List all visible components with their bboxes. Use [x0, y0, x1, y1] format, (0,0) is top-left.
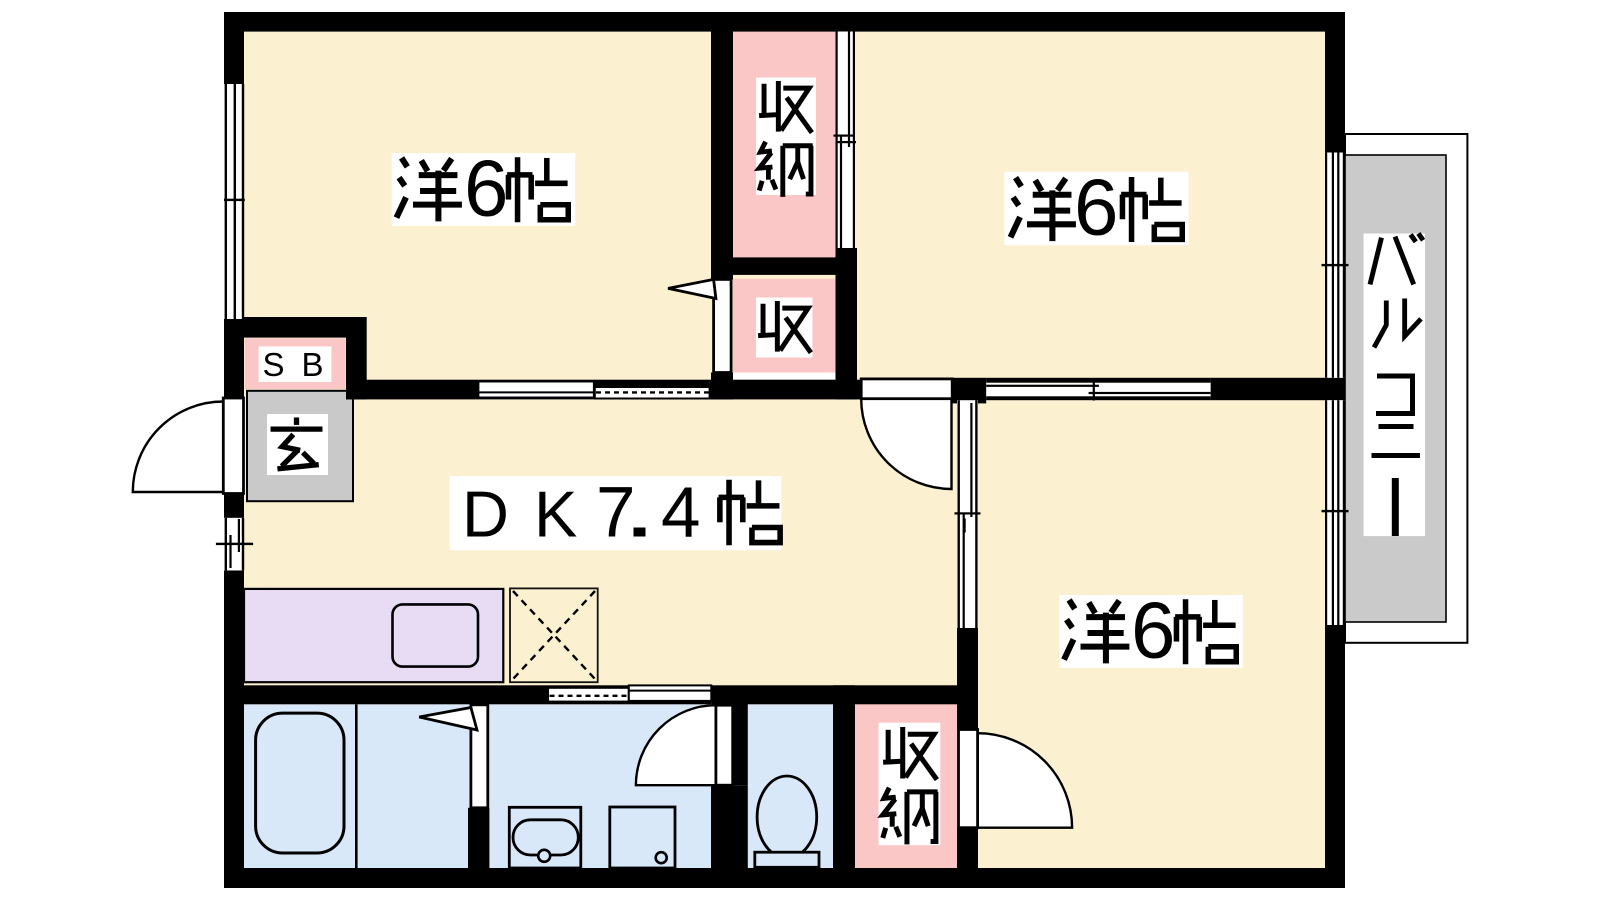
- svg-text:6: 6: [464, 144, 509, 233]
- svg-text:6: 6: [1131, 586, 1176, 675]
- svg-text:7: 7: [596, 473, 636, 552]
- svg-text:B: B: [302, 346, 324, 383]
- svg-text:4: 4: [661, 473, 701, 552]
- svg-text:K: K: [534, 477, 577, 550]
- svg-text:D: D: [462, 477, 509, 550]
- svg-text:6: 6: [1074, 162, 1119, 251]
- svg-text:S: S: [263, 346, 285, 383]
